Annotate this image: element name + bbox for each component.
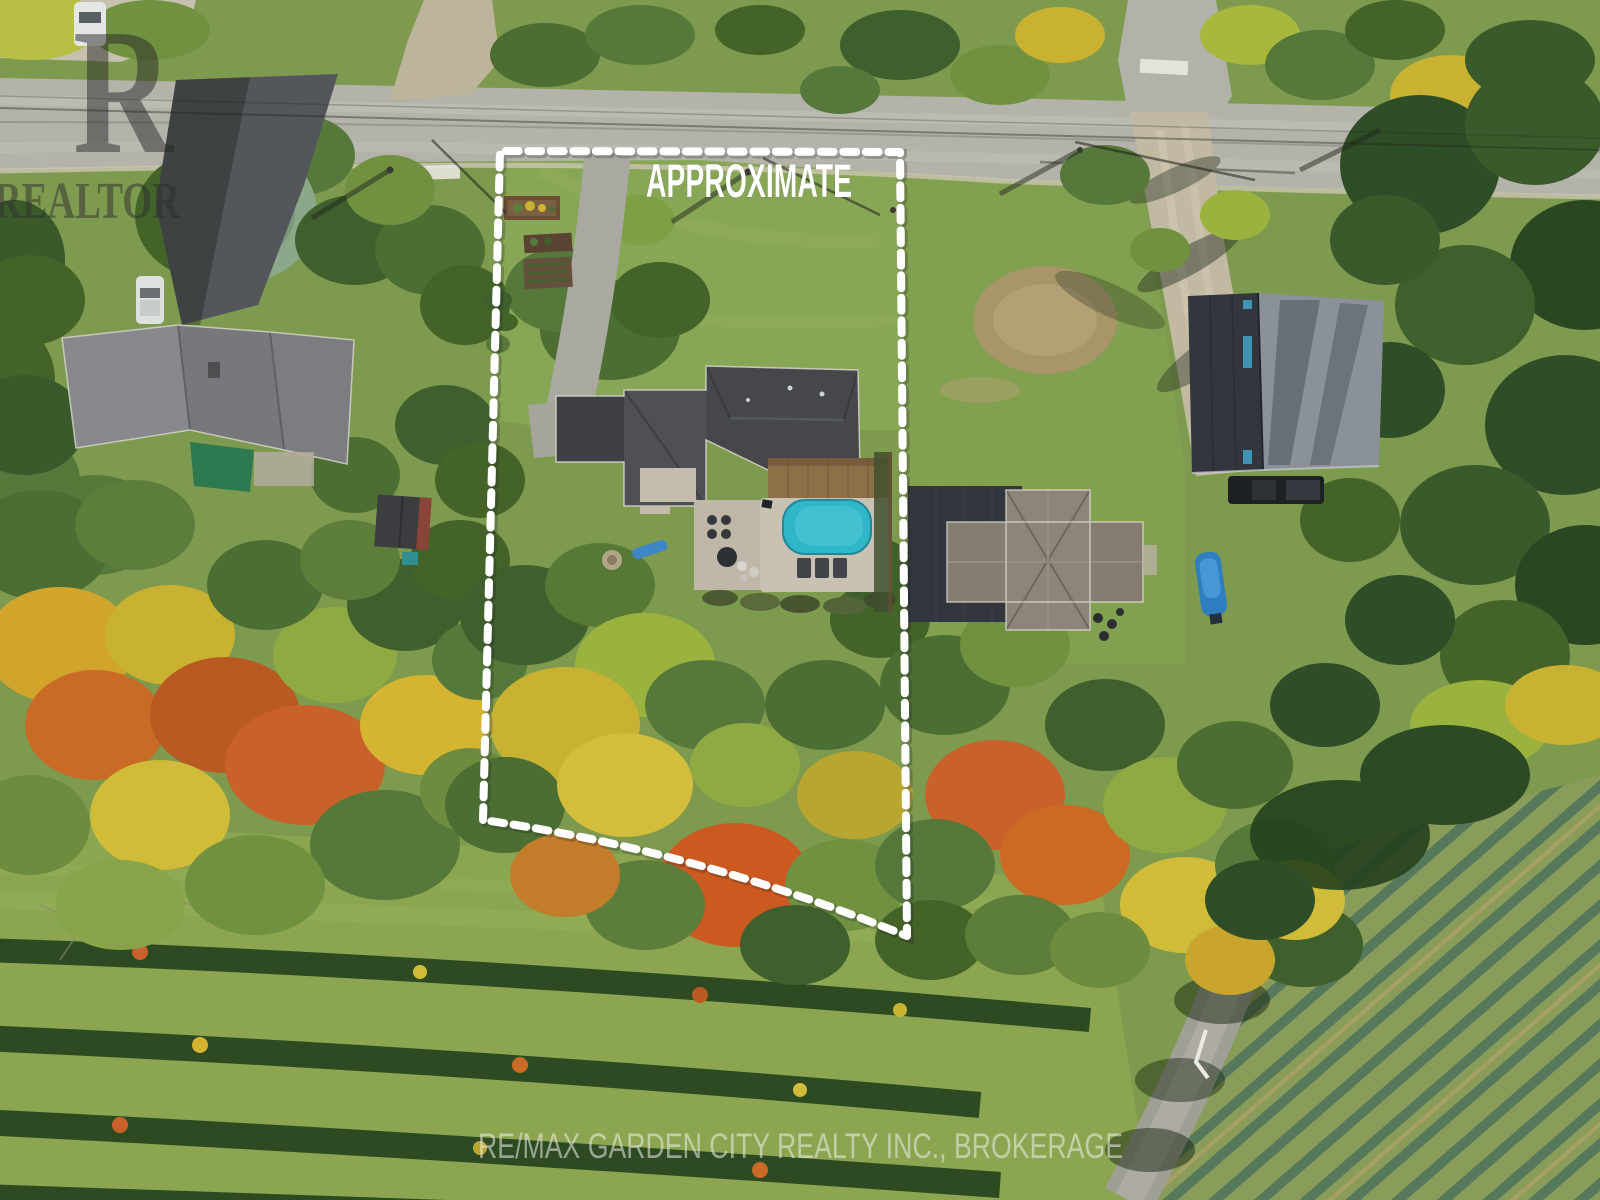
chimney xyxy=(208,362,220,378)
lounge-chairs xyxy=(797,558,847,578)
grill xyxy=(761,499,772,509)
wood-deck xyxy=(768,458,890,500)
swimming-pool xyxy=(783,500,871,554)
green-porch-roof xyxy=(190,442,254,492)
teal-bin xyxy=(402,552,418,565)
back-patio xyxy=(254,452,314,486)
aerial-photo: APPROXIMATE R REALTOR RE/MAX GARDEN CITY… xyxy=(0,0,1600,1200)
parked-car-driveway xyxy=(136,276,164,324)
approximate-label: APPROXIMATE xyxy=(646,154,852,207)
crosswalk-marking xyxy=(1140,59,1189,75)
realtor-watermark-text: REALTOR xyxy=(0,173,181,230)
pickup-truck xyxy=(1228,476,1324,504)
realtor-watermark-letter: R xyxy=(73,0,175,191)
aerial-photo-canvas: APPROXIMATE R REALTOR RE/MAX GARDEN CITY… xyxy=(0,0,1600,1200)
barn-outbuilding xyxy=(1188,293,1384,473)
garage-roof xyxy=(556,396,624,462)
barn-blue-window xyxy=(1243,300,1252,309)
garden-shed xyxy=(374,494,431,550)
brokerage-watermark: RE/MAX GARDEN CITY REALTY INC., BROKERAG… xyxy=(478,1127,1123,1166)
